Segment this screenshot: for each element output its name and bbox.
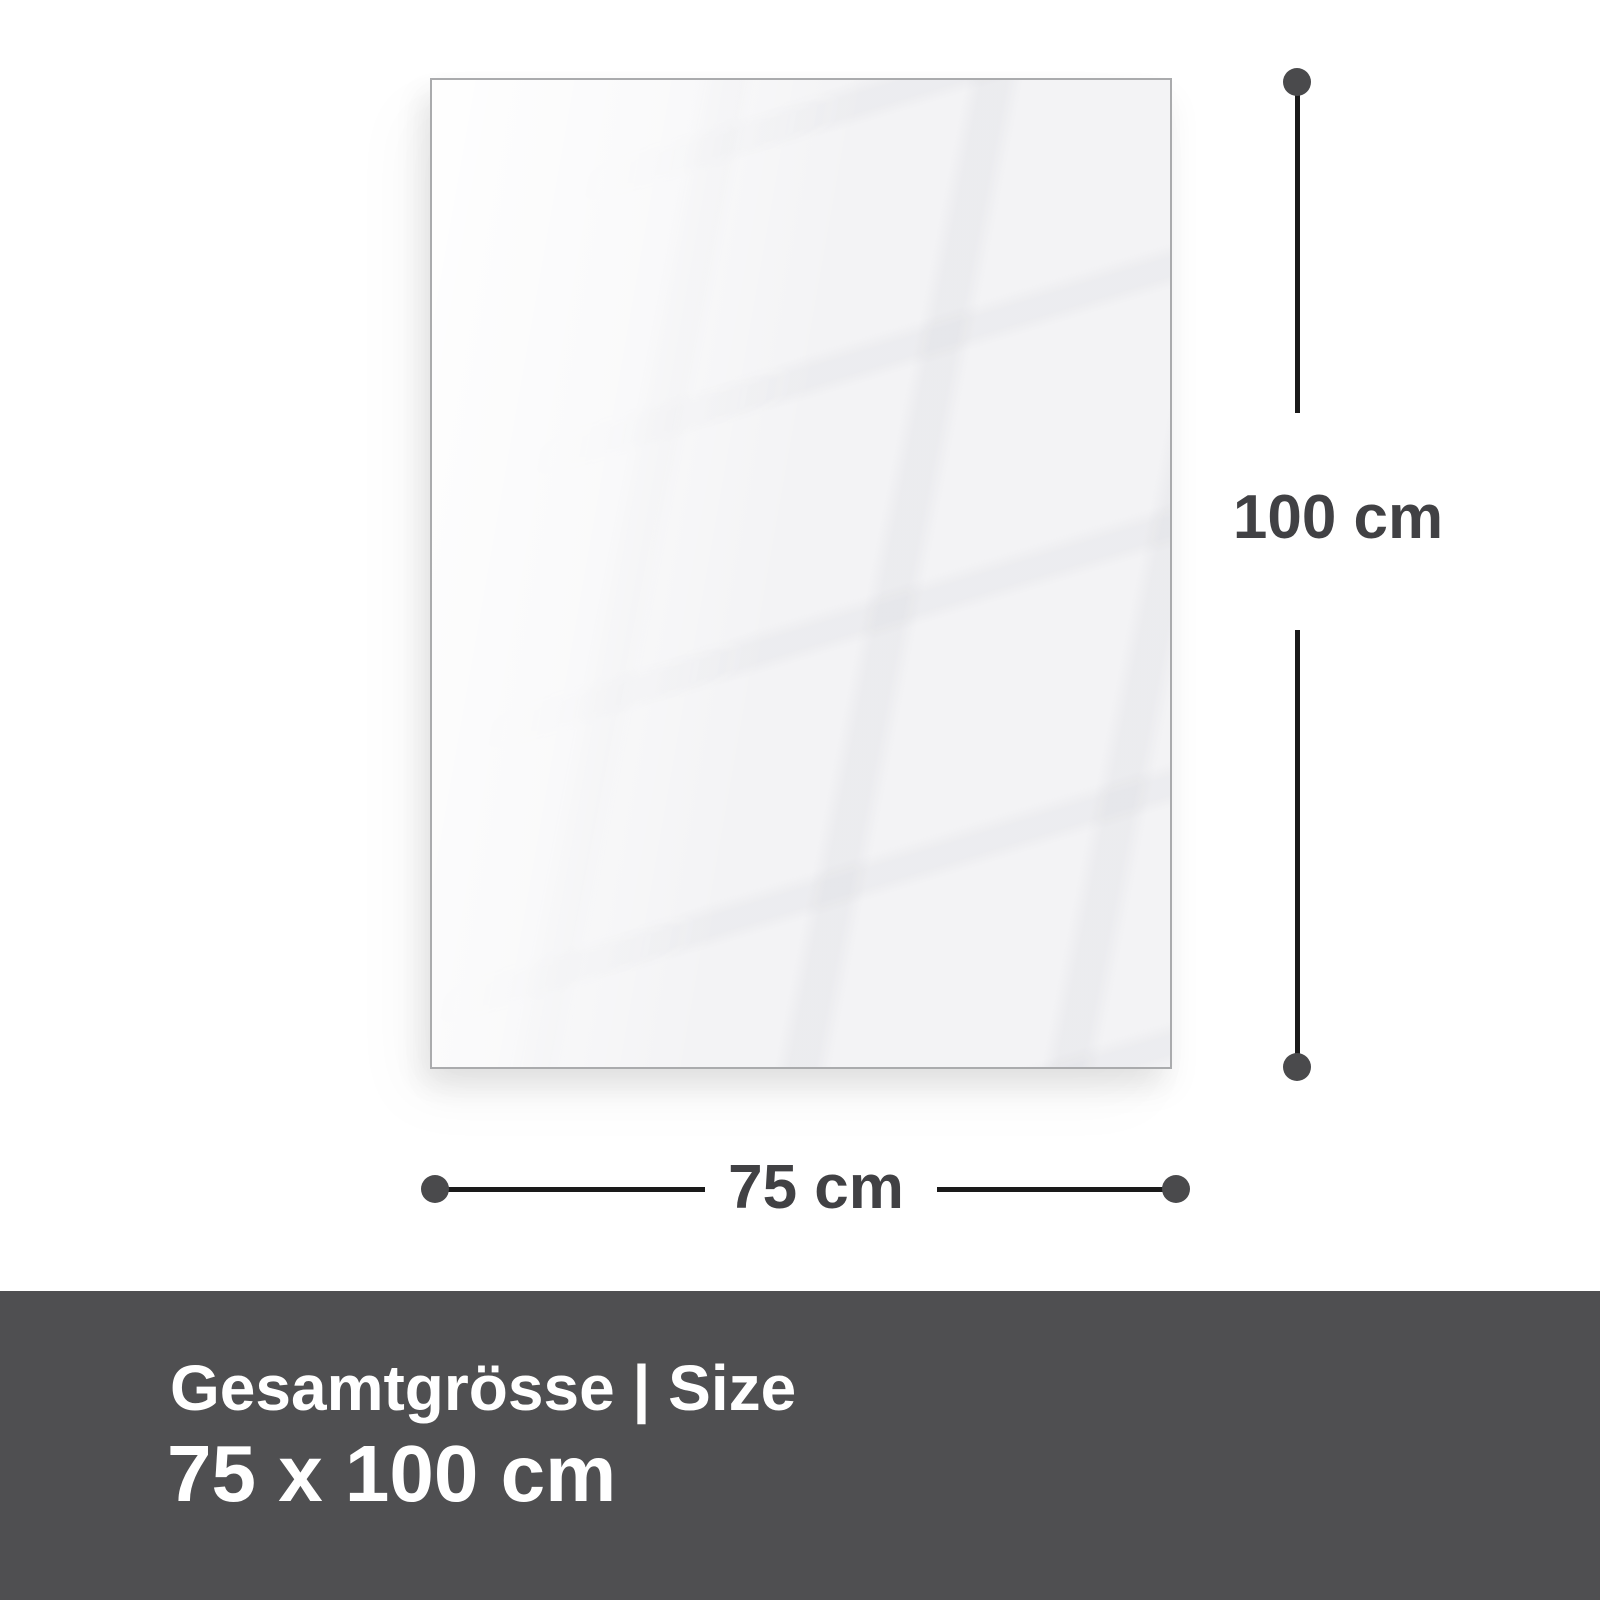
width-dimension-line-right (937, 1187, 1169, 1192)
width-dimension-endpoint-right (1162, 1175, 1190, 1203)
width-dimension-endpoint-left (421, 1175, 449, 1203)
height-dimension-label: 100 cm (1233, 482, 1443, 553)
height-dimension-line-upper (1295, 82, 1300, 413)
height-dimension-endpoint-bottom (1283, 1053, 1311, 1081)
height-dimension-line-lower (1295, 630, 1300, 1067)
width-dimension-label: 75 cm (728, 1152, 904, 1223)
product-size-diagram: 100 cm 75 cm Gesamtgrösse | Size 75 x 10… (0, 0, 1600, 1600)
height-dimension-endpoint-top (1283, 68, 1311, 96)
glass-panel (430, 78, 1172, 1069)
width-dimension-line-left (448, 1187, 705, 1192)
footer-size-value: 75 x 100 cm (167, 1434, 616, 1514)
glass-sheen-highlight (432, 80, 1170, 1067)
footer-title: Gesamtgrösse | Size (170, 1356, 796, 1420)
